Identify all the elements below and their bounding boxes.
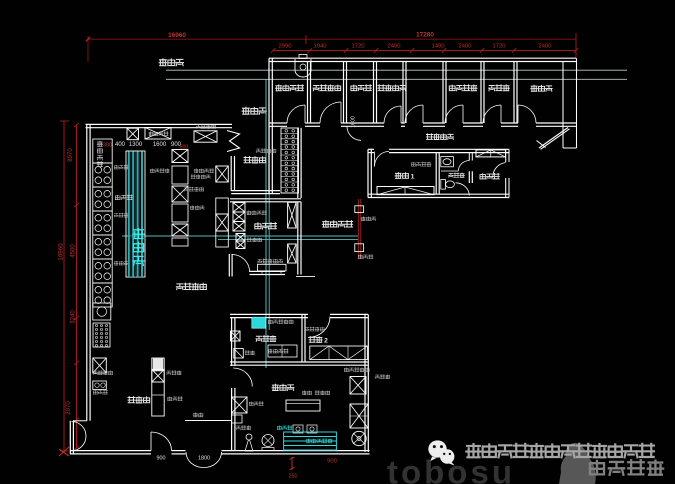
svg-text:900: 900	[157, 456, 166, 462]
svg-text:8970: 8970	[68, 148, 74, 162]
svg-text:3240: 3240	[71, 310, 77, 324]
svg-text:400: 400	[115, 142, 126, 148]
svg-text:2400: 2400	[538, 44, 552, 50]
svg-text:17280: 17280	[416, 32, 434, 39]
svg-text:1720: 1720	[492, 44, 506, 50]
svg-text:4500: 4500	[71, 244, 77, 258]
svg-text:2400: 2400	[387, 44, 401, 50]
svg-text:2: 2	[324, 338, 328, 345]
svg-text:1: 1	[411, 174, 415, 181]
svg-text:1600: 1600	[153, 142, 167, 148]
svg-text:16960: 16960	[168, 32, 186, 39]
svg-text:1940: 1940	[313, 44, 327, 50]
svg-text:1300: 1300	[129, 142, 143, 148]
svg-text:1600: 1600	[351, 116, 357, 128]
svg-text:2070: 2070	[66, 401, 72, 415]
svg-text:1400: 1400	[431, 44, 445, 50]
svg-text:2990: 2990	[278, 44, 292, 50]
svg-text:10960: 10960	[58, 243, 65, 261]
svg-text:2400: 2400	[458, 44, 472, 50]
svg-text:1720: 1720	[351, 44, 365, 50]
svg-text:250: 250	[289, 474, 298, 480]
svg-text:1800: 1800	[198, 456, 210, 462]
svg-text:900: 900	[327, 459, 337, 465]
